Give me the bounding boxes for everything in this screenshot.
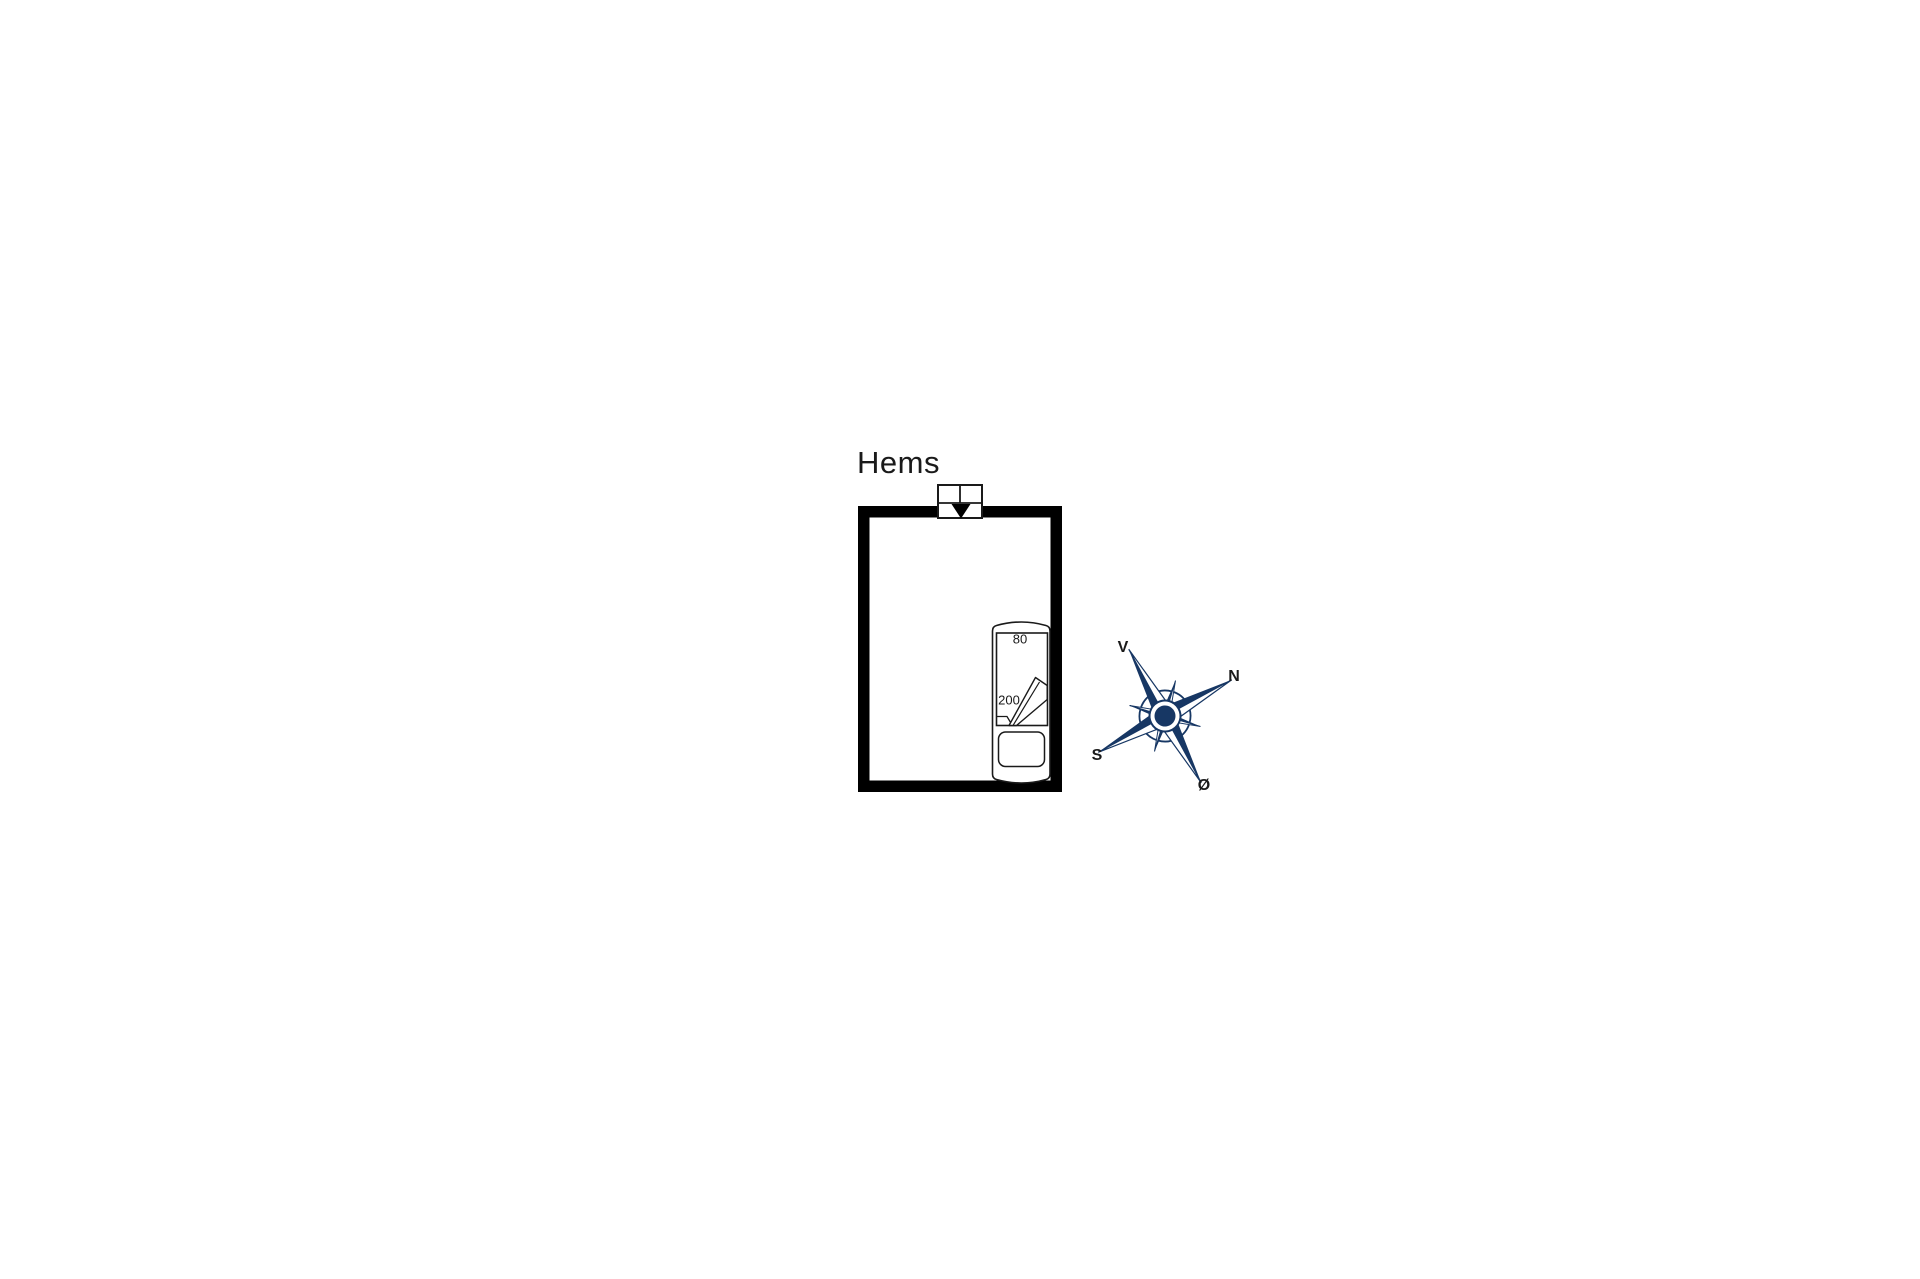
floor-plan [850,478,1075,803]
compass-label-east: Ø [1198,778,1210,794]
room-label: Hems [857,447,940,480]
bed-length-label: 200 [998,694,1020,707]
compass-label-south: S [1092,748,1103,764]
compass-label-west: V [1118,640,1129,656]
compass-label-north: N [1228,669,1240,685]
bed-width-label: 80 [1013,633,1027,646]
page-canvas: Hems 80 200 [0,0,1920,1279]
bed-pillow [999,732,1045,767]
compass-rose-icon [1075,626,1255,806]
roof-window-icon [938,485,982,519]
